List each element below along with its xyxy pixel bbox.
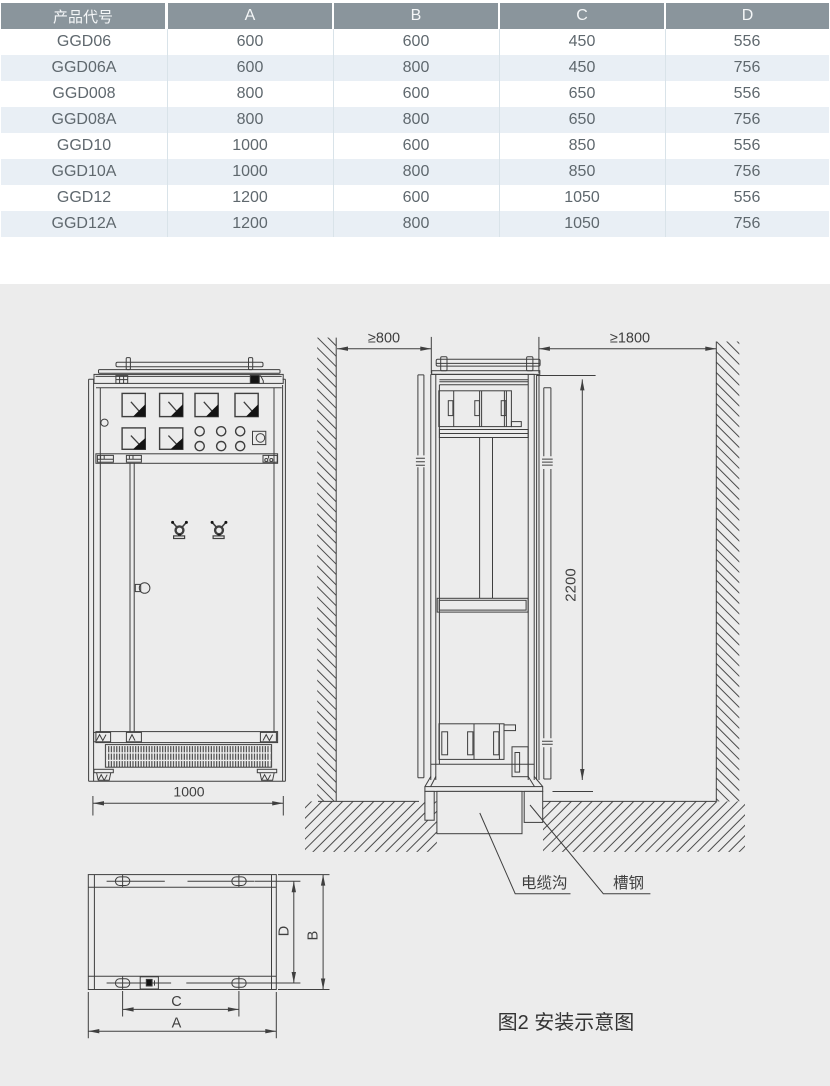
svg-text:电缆沟: 电缆沟 [521, 874, 568, 892]
svg-text:D: D [277, 926, 293, 936]
svg-text:槽钢: 槽钢 [613, 874, 644, 892]
svg-text:1000: 1000 [173, 784, 204, 800]
svg-text:≥1800: ≥1800 [610, 331, 650, 347]
svg-text:A: A [172, 1016, 182, 1032]
svg-text:≥800: ≥800 [368, 331, 400, 347]
svg-text:图2 安装示意图: 图2 安装示意图 [498, 1011, 635, 1034]
svg-text:C: C [171, 994, 181, 1010]
svg-text:2200: 2200 [563, 568, 580, 601]
svg-text:B: B [306, 931, 322, 941]
